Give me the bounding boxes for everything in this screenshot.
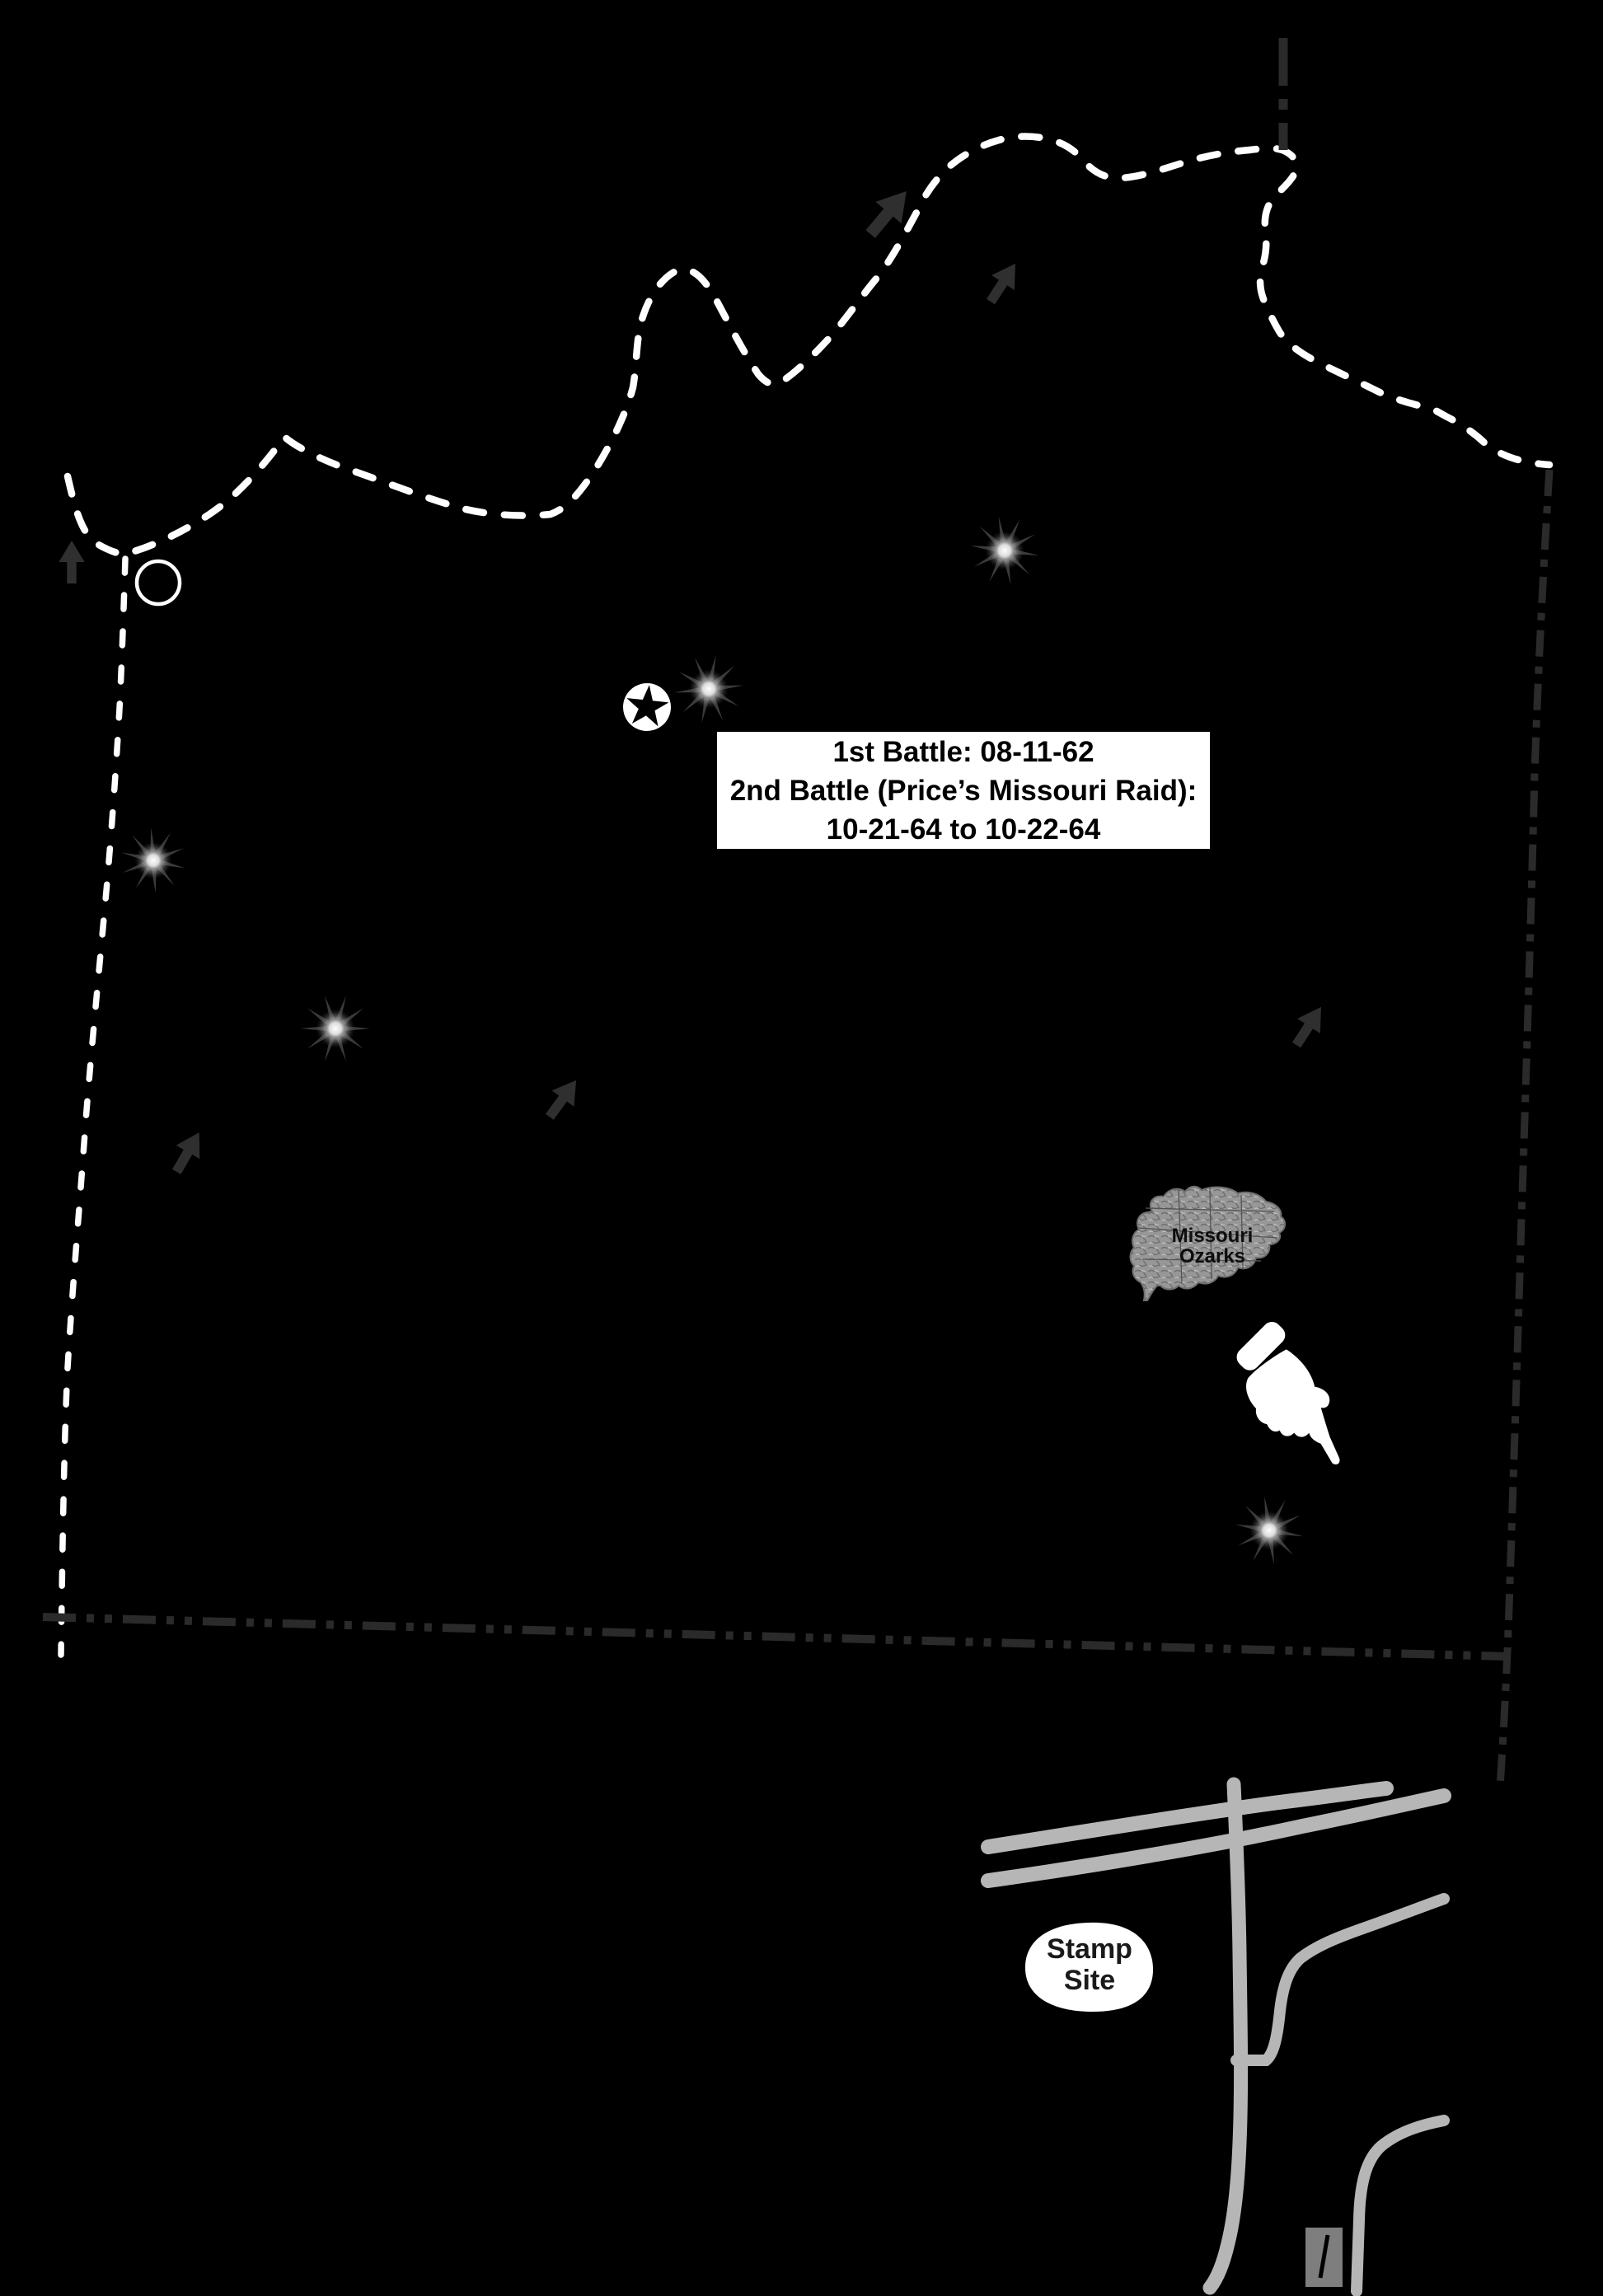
battle-info-line-3: 10-21-64 to 10-22-64 (717, 810, 1210, 849)
stamp-site-label-line-2: Site (1026, 1965, 1153, 1996)
road-vertical-main (1210, 1784, 1241, 2288)
ozarks-inset-label-line-2: Ozarks (1151, 1246, 1274, 1267)
ozarks-inset-label: Missouri Ozarks (1151, 1225, 1274, 1267)
battle-starburst-north-icon (966, 513, 1043, 588)
flow-arrow-top-large-icon (858, 180, 920, 245)
battle-info-line-2: 2nd Battle (Price’s Missouri Raid): (717, 771, 1210, 810)
county-line-west-dashed (61, 559, 125, 1655)
battle-starburst-southwest-icon (301, 996, 370, 1061)
pointing-hand-icon (1216, 1315, 1366, 1486)
county-line-south-dark (43, 1617, 1510, 1656)
flow-arrow-center-icon (538, 1072, 587, 1125)
map-canvas (0, 0, 1603, 2296)
flow-arrow-southwest-icon (165, 1126, 211, 1178)
battle-starburst-west-icon (114, 822, 193, 899)
road-southeast-curve (1357, 2120, 1444, 2291)
battle-info-line-1: 1st Battle: 08-11-62 (717, 733, 1210, 771)
flow-arrow-top-small-icon (979, 256, 1027, 309)
battle-info-box: 1st Battle: 08-11-62 2nd Battle (Price’s… (717, 732, 1210, 849)
road-branch-northeast (1236, 1899, 1444, 2060)
flow-arrow-west-up-icon (59, 541, 84, 583)
battle-starburst-city-icon (671, 653, 747, 725)
stamp-site-label-line-1: Stamp (1026, 1933, 1153, 1965)
river-dashed-line (68, 137, 1549, 555)
flow-arrow-east-icon (1285, 1000, 1333, 1052)
ozarks-inset-label-line-1: Missouri (1151, 1225, 1274, 1246)
city-circled-star-icon (621, 681, 673, 733)
battle-map: 1st Battle: 08-11-62 2nd Battle (Price’s… (0, 0, 1603, 2296)
junction-circle-outline-icon (137, 561, 180, 604)
battle-starburst-southeast-icon (1230, 1492, 1310, 1568)
building-marker (1305, 2228, 1343, 2287)
county-line-east-dark (1500, 470, 1549, 1787)
stamp-site-label: Stamp Site (1026, 1933, 1153, 1996)
